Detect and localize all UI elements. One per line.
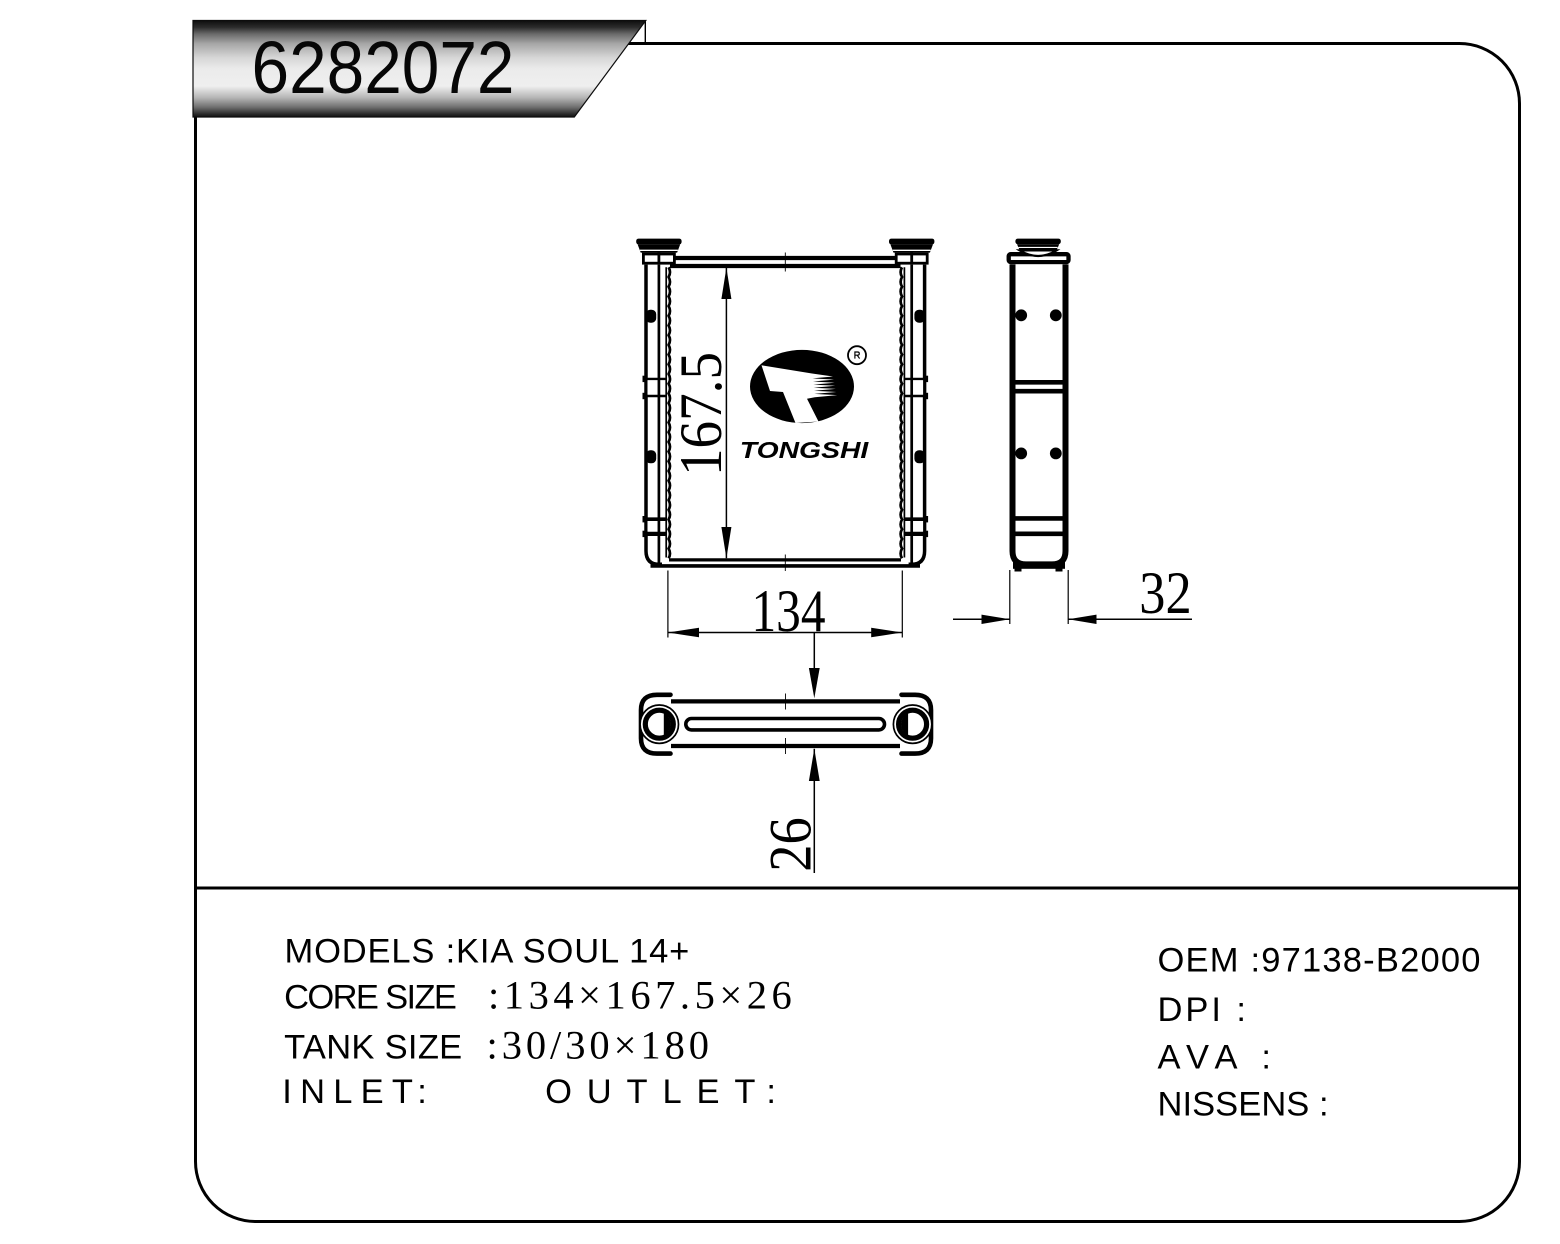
svg-text:DPI :: DPI : <box>1158 991 1247 1029</box>
svg-text:NISSENS :: NISSENS : <box>1158 1086 1329 1124</box>
svg-text:CORE SIZE: CORE SIZE <box>284 978 457 1016</box>
svg-text:MODELS :KIA SOUL 14+: MODELS :KIA SOUL 14+ <box>285 932 690 970</box>
svg-text::30/30×180: :30/30×180 <box>487 1023 710 1068</box>
svg-text:26: 26 <box>757 817 823 872</box>
svg-text:TONGSHI: TONGSHI <box>740 437 869 463</box>
svg-text:TANK SIZE: TANK SIZE <box>284 1029 462 1067</box>
svg-text:OEM :97138-B2000: OEM :97138-B2000 <box>1158 942 1481 980</box>
svg-text:167.5: 167.5 <box>668 352 734 476</box>
svg-text::134×167.5×26: :134×167.5×26 <box>488 972 792 1017</box>
svg-text:6282072: 6282072 <box>252 26 515 109</box>
svg-text:32: 32 <box>1139 560 1191 626</box>
